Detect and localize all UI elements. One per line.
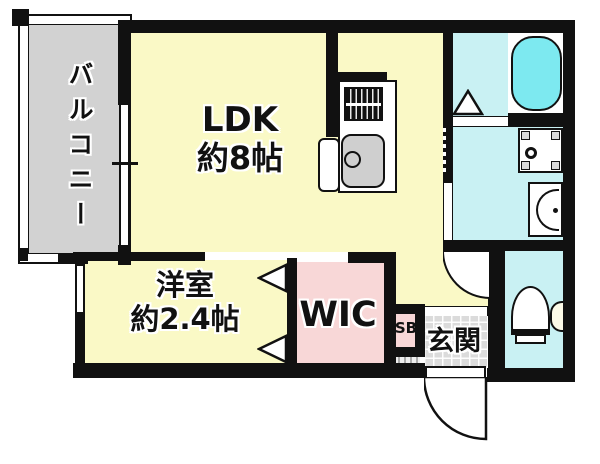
pan-drain [525, 147, 537, 159]
entrance-door-swing-arc [424, 377, 488, 441]
pan-corner [551, 161, 560, 170]
shoebox-label: SB [389, 320, 423, 337]
wall-balcony-cap-top [12, 9, 29, 26]
toilet-paper-holder [550, 301, 563, 332]
pan-corner [521, 161, 530, 170]
bedroom-label: 洋室 約2.4帖 [85, 269, 285, 336]
genkan-label: 玄関 [419, 326, 489, 357]
wall-bottom-left [73, 363, 425, 378]
wall-bath-washroom [508, 113, 575, 127]
ldk-balcony-window [119, 105, 130, 245]
balcony-label: バルコニー [30, 42, 94, 254]
wall-bedroom-left-lower [75, 312, 85, 367]
toilet-base [515, 334, 546, 344]
bathroom-door-triangle [452, 89, 484, 116]
bedroom-window [75, 266, 85, 312]
wic-label: WIC [292, 295, 384, 336]
washbasin-icon [528, 182, 563, 237]
pan-corner [521, 131, 530, 140]
ldk-label-line2: 約8帖 [140, 140, 340, 177]
bathtub-icon [511, 36, 562, 111]
wall-dashed-marker [443, 128, 446, 173]
pan-corner [551, 131, 560, 140]
basin-faucet-dot [553, 208, 558, 213]
ldk-label-line1: LDK [140, 101, 340, 140]
bedroom-label-line2: 約2.4帖 [85, 303, 285, 337]
ldk-label: LDK 約8帖 [140, 101, 340, 178]
washing-machine-pan-icon [518, 128, 563, 173]
wall-balcony-junction [58, 253, 88, 264]
bathroom-door-opening [453, 116, 508, 127]
window-tick [112, 162, 138, 165]
wall-top [118, 20, 575, 33]
sink-drain-circle [344, 151, 361, 168]
wall-balcony-cap-bottom [18, 248, 28, 261]
closet-folding-door-triangle-lower [257, 334, 288, 364]
washroom-door-swing-arc [443, 251, 491, 299]
wall-washroom-bottom [443, 240, 575, 251]
washroom-door-opening [443, 183, 453, 240]
floor-plan: バルコニー LDK 約8帖 洋室 約2.4帖 WIC SB 玄関 [0, 0, 600, 464]
bedroom-label-line1: 洋室 [85, 269, 285, 303]
gas-stove-icon [344, 87, 383, 121]
wall-ldk-left-upper [118, 20, 131, 105]
wall-right [563, 20, 575, 382]
